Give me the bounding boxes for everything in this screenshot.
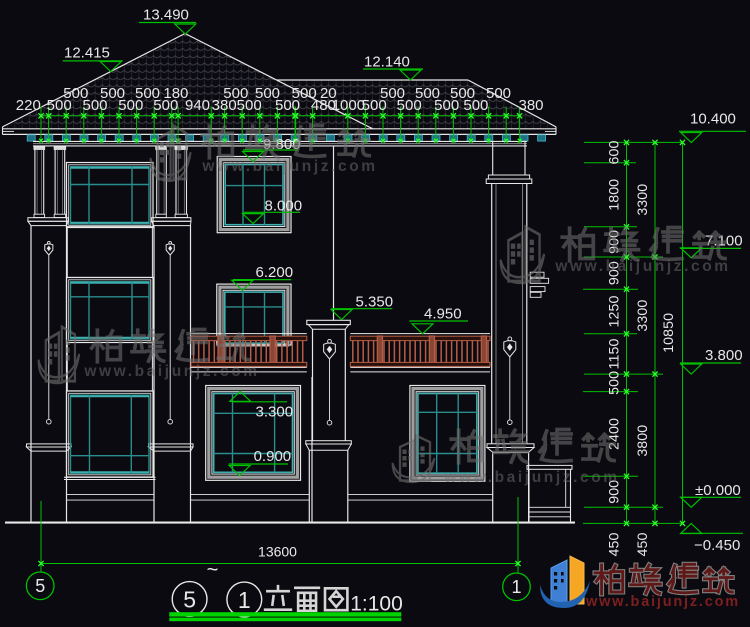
svg-text:500: 500: [275, 97, 300, 114]
svg-text:500: 500: [463, 97, 488, 114]
svg-text:5: 5: [35, 576, 45, 596]
svg-text:12.140: 12.140: [364, 54, 410, 71]
svg-text:450: 450: [635, 533, 651, 557]
svg-text:www.baijunjz.com: www.baijunjz.com: [443, 469, 619, 486]
svg-text:1800: 1800: [607, 179, 623, 211]
svg-text:500: 500: [607, 371, 623, 395]
svg-text:220: 220: [16, 97, 41, 114]
svg-text:5.350: 5.350: [356, 293, 394, 310]
svg-text:500: 500: [118, 97, 143, 114]
svg-text:500: 500: [153, 97, 178, 114]
svg-text:−0.450: −0.450: [694, 537, 740, 554]
svg-text:500: 500: [47, 97, 72, 114]
svg-text:1000: 1000: [332, 97, 365, 114]
svg-text:500: 500: [82, 97, 107, 114]
svg-text:500: 500: [486, 85, 511, 102]
svg-text:5: 5: [183, 587, 196, 613]
svg-text:~: ~: [207, 559, 219, 581]
svg-text:www.baijunjz.com: www.baijunjz.com: [554, 258, 730, 275]
svg-text:3.800: 3.800: [705, 347, 743, 364]
svg-text:6.200: 6.200: [256, 264, 294, 281]
svg-text:1250: 1250: [607, 296, 623, 328]
svg-text:1150: 1150: [607, 339, 623, 370]
svg-text:3300: 3300: [635, 300, 651, 332]
svg-text:0.900: 0.900: [254, 448, 292, 465]
svg-text:4.950: 4.950: [424, 306, 462, 323]
svg-text:500: 500: [362, 97, 387, 114]
svg-text:3800: 3800: [635, 425, 651, 457]
svg-text:380: 380: [212, 97, 237, 114]
svg-text:12.415: 12.415: [64, 45, 110, 62]
svg-text:380: 380: [518, 97, 543, 114]
svg-text:www.baijunjz.com: www.baijunjz.com: [585, 594, 740, 610]
svg-text:1: 1: [511, 577, 521, 597]
svg-text:13600: 13600: [258, 544, 297, 560]
svg-text:500: 500: [434, 97, 459, 114]
svg-text:±0.000: ±0.000: [695, 482, 741, 499]
svg-text:940: 940: [185, 97, 210, 114]
svg-text:1:100: 1:100: [350, 593, 403, 616]
svg-text:1: 1: [238, 587, 251, 613]
svg-text:3.300: 3.300: [256, 404, 294, 421]
svg-text:www.baijunjz.com: www.baijunjz.com: [83, 363, 259, 380]
svg-text:10850: 10850: [661, 313, 677, 353]
svg-text:3300: 3300: [635, 184, 651, 216]
svg-text:10.400: 10.400: [690, 111, 736, 128]
svg-text:500: 500: [237, 97, 262, 114]
svg-text:13.490: 13.490: [143, 7, 189, 24]
svg-text:450: 450: [607, 533, 623, 557]
svg-text:500: 500: [397, 97, 422, 114]
svg-text:www.baijunjz.com: www.baijunjz.com: [201, 158, 377, 175]
svg-text:600: 600: [607, 141, 623, 165]
